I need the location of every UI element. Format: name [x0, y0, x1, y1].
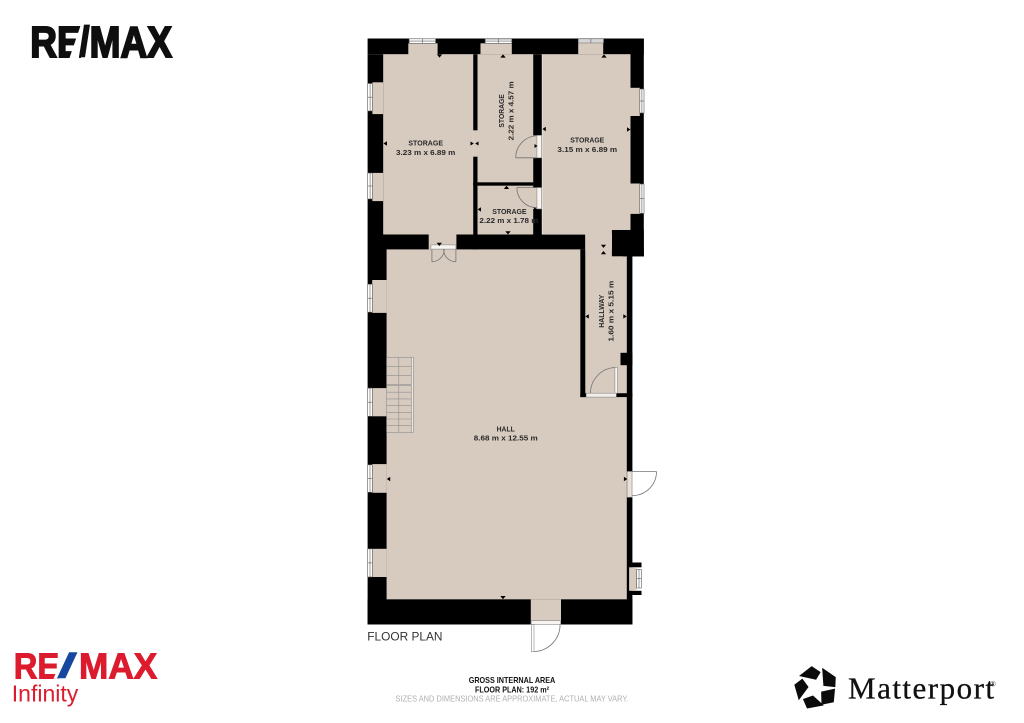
- svg-text:MAX: MAX: [90, 18, 172, 67]
- svg-text:FLOOR PLAN: FLOOR PLAN: [367, 629, 442, 643]
- svg-text:2.22 m x 1.78 m: 2.22 m x 1.78 m: [479, 218, 538, 225]
- svg-text:®: ®: [990, 680, 996, 689]
- svg-text:3.23 m x 6.89 m: 3.23 m x 6.89 m: [396, 150, 455, 157]
- svg-text:Matterport: Matterport: [848, 671, 994, 706]
- svg-text:HALL: HALL: [497, 427, 516, 434]
- svg-text:3.15 m x 6.89 m: 3.15 m x 6.89 m: [557, 147, 617, 154]
- svg-text:RE: RE: [30, 18, 81, 67]
- svg-text:STORAGE: STORAGE: [408, 141, 443, 148]
- svg-text:STORAGE: STORAGE: [492, 209, 527, 216]
- svg-text:HALLWAY: HALLWAY: [599, 294, 606, 328]
- svg-text:SIZES AND DIMENSIONS ARE APPRO: SIZES AND DIMENSIONS ARE APPROXIMATE, AC…: [396, 693, 629, 703]
- svg-text:1.60 m x 5.15 m: 1.60 m x 5.15 m: [608, 281, 615, 342]
- svg-text:8.68 m x 12.55 m: 8.68 m x 12.55 m: [474, 436, 538, 443]
- svg-text:MAX: MAX: [79, 645, 158, 686]
- svg-text:STORAGE: STORAGE: [570, 138, 604, 145]
- svg-text:STORAGE: STORAGE: [499, 94, 506, 128]
- svg-text:Infinity: Infinity: [12, 680, 79, 706]
- svg-text:2.22 m x 4.57 m: 2.22 m x 4.57 m: [509, 81, 516, 140]
